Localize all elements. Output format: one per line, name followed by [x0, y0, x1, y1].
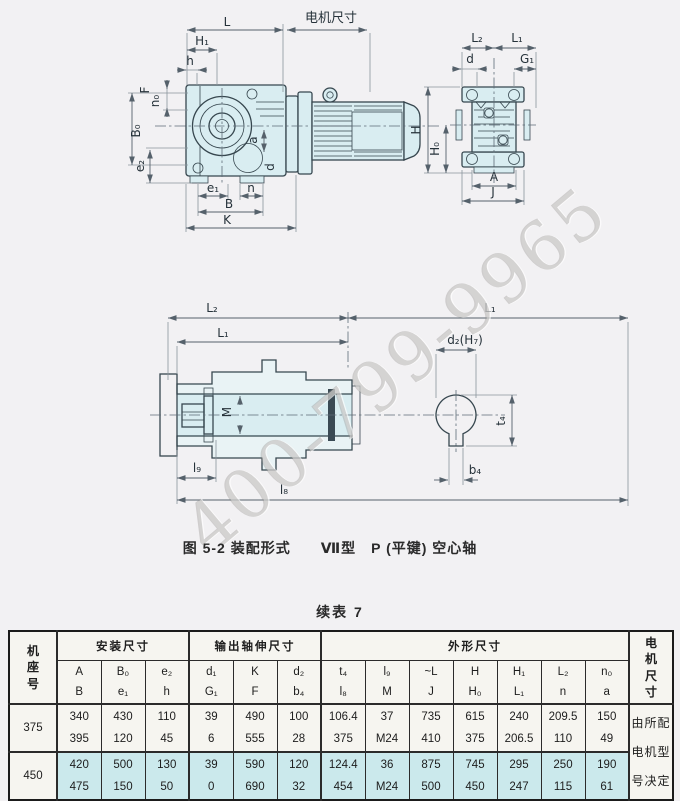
dim-label-L2-sect: L₂: [206, 301, 218, 315]
dim-label-d-front: d: [466, 52, 474, 66]
motor-panel: [352, 112, 402, 150]
technical-drawings: L 电机尺寸 H₁ h B₀ n₀ F e₂ a d e₁: [0, 0, 680, 530]
motor-flange: [298, 92, 312, 174]
col-header-frame-no: 机 座 号: [9, 631, 57, 704]
foot-pad: [190, 176, 208, 183]
group-header-overall: 外形尺寸: [321, 631, 629, 661]
table-row-375: 375 340395 430120 11045 396 490555 10028…: [9, 704, 673, 752]
dim-label-n0: n₀: [148, 95, 162, 108]
dim-label-B0: B₀: [129, 124, 143, 137]
dim-label-L1-sect-inner: L₁: [217, 326, 229, 340]
sym-col-d1-G1: d₁G₁: [189, 661, 233, 705]
group-header-install: 安装尺寸: [57, 631, 189, 661]
dim-label-F: F: [138, 86, 152, 93]
sym-col-A-B: AB: [57, 661, 101, 705]
frame-no-375: 375: [9, 704, 57, 752]
dimension-table: 机 座 号 安装尺寸 输出轴伸尺寸 外形尺寸 电 机 尺 寸 AB B₀e₁ e…: [8, 630, 674, 801]
sym-col-H-H0: HH₀: [453, 661, 497, 705]
sym-col-L2-n: L₂n: [541, 661, 585, 705]
dim-label-A-front: A: [490, 170, 499, 184]
dim-label-h: h: [186, 54, 194, 68]
sym-col-d2-b4: d₂b₄: [277, 661, 321, 705]
dim-label-t4: t₄: [494, 416, 508, 426]
side-view-drawing: L 电机尺寸 H₁ h B₀ n₀ F e₂ a d e₁: [128, 11, 442, 232]
sym-col-B0-e1: B₀e₁: [101, 661, 145, 705]
sym-col-l9-M: l₉M: [365, 661, 409, 705]
dim-label-B: B: [225, 197, 233, 211]
dim-label-H-front: H: [409, 125, 423, 134]
table-symbol-header-row: AB B₀e₁ e₂h d₁G₁ KF d₂b₄ t₄l₈ l₉M ~LJ HH…: [9, 661, 673, 705]
dim-label-K: K: [223, 213, 232, 227]
dim-label-H1: H₁: [195, 34, 209, 48]
sym-col-L-J: ~LJ: [409, 661, 453, 705]
dim-label-d2H7: d₂(H₇): [447, 333, 483, 347]
dim-label-L1-sect-top: L₁: [484, 301, 496, 315]
dim-label-L2-front: L₂: [471, 31, 483, 45]
lifting-eye: [323, 88, 337, 102]
dim-label-e2: e₂: [133, 160, 147, 172]
front-view-drawing: L₂ L₁ d G₁ H H₀ A J: [409, 31, 536, 205]
col-header-motor-size: 电 机 尺 寸: [629, 631, 673, 704]
shaft-detail-drawing: d₂(H₇) t₄ b₄: [434, 333, 517, 485]
dim-label-n: n: [247, 181, 255, 195]
sym-col-e2-h: e₂h: [145, 661, 189, 705]
dim-label-J-front: J: [490, 185, 495, 199]
dim-label-l8: l₈: [280, 483, 288, 497]
dim-label-H0-front: H₀: [428, 142, 442, 156]
dim-label-a: a: [246, 136, 260, 143]
table-group-header-row: 机 座 号 安装尺寸 输出轴伸尺寸 外形尺寸 电 机 尺 寸: [9, 631, 673, 661]
sym-col-H1-L1: H₁L₁: [497, 661, 541, 705]
catalog-page: L 电机尺寸 H₁ h B₀ n₀ F e₂ a d e₁: [0, 0, 680, 800]
dim-label-l9: l₉: [193, 461, 201, 475]
dim-label-L1-front: L₁: [511, 31, 523, 45]
sym-col-n0-a: n₀a: [585, 661, 629, 705]
dim-label-L: L: [224, 15, 231, 29]
motor-note-cell: 由所配 电机型 号决定: [629, 704, 673, 800]
table-row-450: 450 420475 500150 13050 390 590690 12032…: [9, 752, 673, 800]
figure-caption: 图 5-2 装配形式 Ⅶ型 P (平键) 空心轴: [0, 538, 660, 558]
dim-label-d-side: d: [263, 163, 277, 171]
table-title: 续表 7: [0, 602, 680, 622]
dim-label-G1-front: G₁: [520, 52, 534, 66]
dim-label-motor-size: 电机尺寸: [305, 11, 357, 26]
sym-col-K-F: KF: [233, 661, 277, 705]
dim-label-b4: b₄: [469, 463, 482, 477]
dim-label-M: M: [220, 407, 234, 417]
section-view-drawing: M L₂ L₁ L₁ l₉ l₈: [150, 301, 628, 506]
group-header-output-shaft: 输出轴伸尺寸: [189, 631, 321, 661]
frame-no-450: 450: [9, 752, 57, 800]
dim-label-e1: e₁: [207, 181, 219, 195]
sym-col-t4-l8: t₄l₈: [321, 661, 365, 705]
